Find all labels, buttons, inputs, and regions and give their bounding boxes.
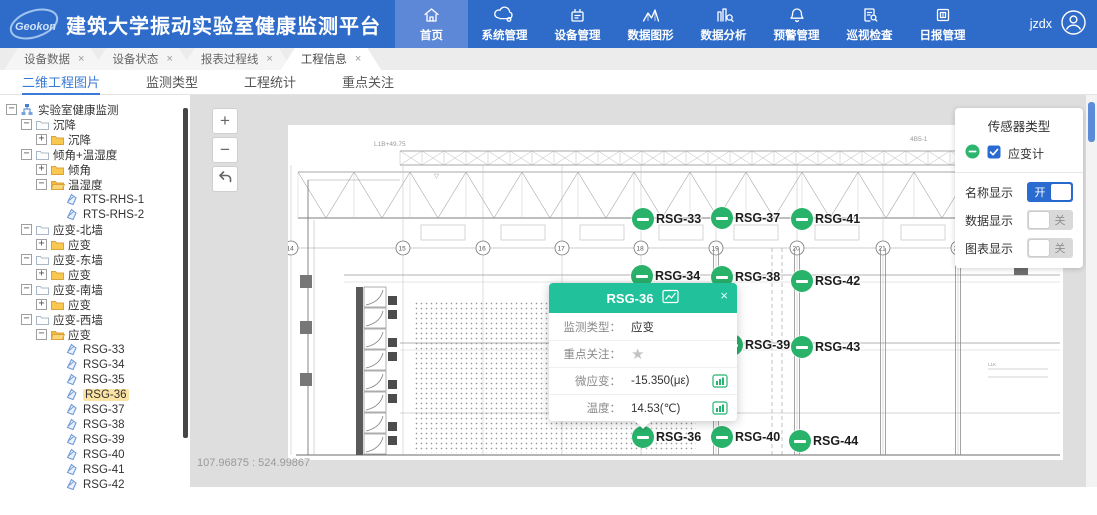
tree-item[interactable]: − 沉降 <box>0 117 190 132</box>
trend-chart-icon[interactable] <box>662 289 679 307</box>
sub-tabbar: 二维工程图片 监测类型 工程统计 重点关注 <box>0 70 1097 95</box>
sensor-type-row: 应变计 <box>965 144 1073 162</box>
nav-label: 首页 <box>420 27 443 43</box>
tree-item[interactable]: + 倾角 <box>0 162 190 177</box>
toggle-knob <box>1029 212 1049 228</box>
collapse-minus-icon[interactable] <box>965 144 980 162</box>
tree-expander[interactable]: − <box>21 284 32 295</box>
sensor-marker-label: RSG-36 <box>656 430 701 444</box>
tree-item[interactable]: + 沉降 <box>0 132 190 147</box>
tree-item[interactable]: RSG-41 <box>0 462 190 477</box>
tree-item-label: RSG-42 <box>83 479 125 491</box>
toggle-state-label: 关 <box>1049 212 1071 228</box>
display-toggle[interactable]: 关 <box>1027 210 1073 230</box>
tree-expander[interactable]: − <box>21 254 32 265</box>
popup-rows: 监测类型： 应变 重点关注： ★ 微应变： -15.350(με) 温度： 14… <box>549 313 737 421</box>
tree-item-icon <box>65 343 80 356</box>
toggle-state-label: 关 <box>1049 240 1071 256</box>
sensor-marker[interactable]: RSG-40 <box>711 426 780 448</box>
sensor-marker-label: RSG-33 <box>656 212 701 226</box>
tree-item-label: 应变-东墙 <box>53 252 103 268</box>
svg-text:21: 21 <box>879 246 887 253</box>
bar-chart-icon[interactable] <box>712 401 728 415</box>
username: jzdx <box>1030 17 1052 31</box>
tab-label: 报表过程线 <box>201 51 259 67</box>
popup-row: 微应变： -15.350(με) <box>549 367 737 394</box>
sub-tab-label: 工程统计 <box>244 72 296 91</box>
nav-item[interactable]: 预警管理 <box>760 0 833 48</box>
svg-text:4B5-1: 4B5-1 <box>910 136 928 143</box>
nav-icon <box>714 5 734 25</box>
undo-icon <box>217 169 233 189</box>
tree-item-icon <box>65 388 80 401</box>
svg-text:16: 16 <box>479 246 487 253</box>
svg-text:Geokon: Geokon <box>15 21 56 33</box>
sensor-marker[interactable]: RSG-33 <box>632 208 701 230</box>
nav-icon <box>422 5 441 25</box>
sensor-marker-icon <box>711 426 733 448</box>
sensor-marker[interactable]: RSG-43 <box>791 336 860 358</box>
sensor-marker-icon <box>791 336 813 358</box>
bar-chart-icon[interactable] <box>712 374 728 388</box>
nav-label: 数据分析 <box>701 27 747 43</box>
tree-item[interactable]: RSG-38 <box>0 417 190 432</box>
popup-pointer-arrow <box>635 421 651 429</box>
nav-icon <box>934 5 952 25</box>
sensor-marker[interactable]: RSG-41 <box>791 208 860 230</box>
cursor-coordinates: 107.96875 : 524.99867 <box>197 457 310 469</box>
tree-item[interactable]: − 实验室健康监测 <box>0 102 190 117</box>
tree-item[interactable]: + 应变 <box>0 267 190 282</box>
tab-close-icon[interactable]: × <box>166 53 172 65</box>
tree-item[interactable]: RSG-33 <box>0 342 190 357</box>
reset-view-button[interactable] <box>212 166 238 192</box>
sub-tab[interactable]: 工程统计 <box>244 70 296 95</box>
sensor-popup-header: RSG-36 × <box>549 283 737 313</box>
sensor-marker-label: RSG-44 <box>813 434 858 448</box>
svg-text:15: 15 <box>399 246 407 253</box>
page-title: 建筑大学振动实验室健康监测平台 <box>66 10 381 39</box>
tree-item-icon <box>65 478 80 491</box>
tree-expander[interactable]: − <box>36 329 47 340</box>
tree-item-icon <box>35 148 50 161</box>
tab-label: 工程信息 <box>301 51 347 67</box>
window-tab[interactable]: 工程信息 × <box>281 48 381 70</box>
sensor-marker-icon <box>789 430 811 452</box>
nav-icon <box>641 5 661 25</box>
nav-item[interactable]: 设备管理 <box>541 0 614 48</box>
tree-item[interactable]: RSG-37 <box>0 402 190 417</box>
panel-divider <box>955 172 1083 173</box>
tree-item-icon <box>35 223 50 236</box>
popup-row: 温度： 14.53(℃) <box>549 394 737 421</box>
sensor-marker-label: RSG-42 <box>815 274 860 288</box>
zoom-controls: + − <box>212 108 238 195</box>
nav-label: 巡视检查 <box>847 27 893 43</box>
tree-item-label: RSG-36 <box>83 389 129 401</box>
checkbox-checked-icon[interactable] <box>987 145 1001 162</box>
popup-row-label: 监测类型： <box>549 319 621 335</box>
tree-item[interactable]: RSG-35 <box>0 372 190 387</box>
window-tab[interactable]: 报表过程线 × <box>181 48 293 70</box>
toggle-row: 数据显示 关 <box>965 210 1073 230</box>
sensor-marker-label: RSG-41 <box>815 212 860 226</box>
sensor-type-label: 应变计 <box>1008 145 1044 162</box>
zoom-in-button[interactable]: + <box>212 108 238 134</box>
tree-expander[interactable]: + <box>36 239 47 250</box>
tree-expander[interactable]: + <box>36 134 47 145</box>
window-tab[interactable]: 设备状态 × <box>92 48 192 70</box>
tree-expander[interactable]: − <box>21 149 32 160</box>
sensor-marker-label: RSG-40 <box>735 430 780 444</box>
svg-text:▽: ▽ <box>434 173 439 180</box>
popup-row-label: 重点关注： <box>549 346 621 362</box>
sensor-marker-icon <box>791 270 813 292</box>
tab-label: 设备数据 <box>24 51 70 67</box>
tree-item-icon <box>65 448 80 461</box>
zoom-out-button[interactable]: − <box>212 137 238 163</box>
popup-row-label: 微应变： <box>549 373 621 389</box>
tree-item-label: RTS-RHS-2 <box>83 209 144 221</box>
tree-item-icon <box>50 133 65 146</box>
tree-item-label: 应变-南墙 <box>53 282 103 298</box>
toggle-label: 图表显示 <box>965 240 1013 257</box>
popup-row-value: ★ <box>631 347 644 362</box>
tree-item-label: 实验室健康监测 <box>38 102 119 118</box>
nav-item[interactable]: 数据分析 <box>687 0 760 48</box>
popup-row: 监测类型： 应变 <box>549 313 737 340</box>
sub-tab[interactable]: 重点关注 <box>342 70 394 95</box>
tree-item-label: RSG-41 <box>83 464 125 476</box>
tree-item[interactable]: + 应变 <box>0 237 190 252</box>
tree-item-icon <box>20 103 35 116</box>
tree-item-icon <box>50 328 65 341</box>
nav-item[interactable]: 数据图形 <box>614 0 687 48</box>
tree-item[interactable]: − 应变-东墙 <box>0 252 190 267</box>
sensor-popup: RSG-36 × 监测类型： 应变 重点关注： ★ 微应变： -15.350(μ… <box>549 283 737 421</box>
nav-icon <box>788 5 806 25</box>
sensor-marker[interactable]: RSG-36 <box>632 426 701 448</box>
tree-item-label: RSG-39 <box>83 434 125 446</box>
page-scrollbar-thumb[interactable] <box>1088 102 1095 142</box>
tree-item[interactable]: + 应变 <box>0 297 190 312</box>
svg-text:18: 18 <box>637 246 645 253</box>
tree-item-label: 温湿度 <box>68 177 103 193</box>
tree-item-label: 应变 <box>68 297 91 313</box>
page-scrollbar <box>1086 95 1097 487</box>
tree-item-label: RSG-34 <box>83 359 125 371</box>
sensor-marker-label: RSG-39 <box>745 338 790 352</box>
tree-item[interactable]: RSG-42 <box>0 477 190 492</box>
sensor-marker[interactable]: RSG-42 <box>791 270 860 292</box>
sensor-marker-label: RSG-37 <box>735 211 780 225</box>
sensor-type-panel: 传感器类型 应变计 名称显示 开 数据显示 关 <box>955 108 1083 268</box>
toggle-knob <box>1029 240 1049 256</box>
sensor-marker-icon <box>632 426 654 448</box>
tree-item-icon <box>50 268 65 281</box>
tree-expander[interactable]: − <box>21 314 32 325</box>
tree-item-icon <box>35 313 50 326</box>
nav-label: 日报管理 <box>920 27 966 43</box>
svg-text:20: 20 <box>793 246 801 253</box>
svg-text:17: 17 <box>558 246 566 253</box>
tree-item[interactable]: − 倾角+温湿度 <box>0 147 190 162</box>
tree-item-icon <box>50 238 65 251</box>
popup-row-value: -15.350(με) <box>631 375 689 387</box>
tab-label: 设备状态 <box>112 51 158 67</box>
tree-item[interactable]: RSG-34 <box>0 357 190 372</box>
tree-expander[interactable]: − <box>36 179 47 190</box>
tree-item-icon <box>65 463 80 476</box>
tree-item-icon <box>35 283 50 296</box>
tree-item-icon <box>50 163 65 176</box>
nav-icon <box>568 5 587 25</box>
nav-label: 预警管理 <box>774 27 820 43</box>
nav-icon <box>494 5 515 25</box>
tree-item-label: 应变 <box>68 237 91 253</box>
sensor-marker-icon <box>791 208 813 230</box>
drawing-canvas: + − 141516171819202122L1KL1B+49.754B5-1▽… <box>190 95 1086 487</box>
tree-item[interactable]: RSG-36 <box>0 387 190 402</box>
sub-tab-label: 二维工程图片 <box>22 72 100 91</box>
svg-text:L1B+49.75: L1B+49.75 <box>374 141 406 148</box>
tree-item-icon <box>65 373 80 386</box>
tree-item-icon <box>65 418 80 431</box>
nav-item[interactable]: 首页 <box>395 0 468 48</box>
geokon-logo-icon: Geokon <box>6 4 62 44</box>
sensor-marker-icon <box>632 208 654 230</box>
sub-tab-label: 监测类型 <box>146 72 198 91</box>
sub-tab[interactable]: 二维工程图片 <box>22 70 100 95</box>
tree-expander[interactable]: + <box>36 269 47 280</box>
tree-item-icon <box>50 178 65 191</box>
tree-item-label: 应变-北墙 <box>53 222 103 238</box>
nav-label: 数据图形 <box>628 27 674 43</box>
tree-item[interactable]: − 温湿度 <box>0 177 190 192</box>
tab-close-icon[interactable]: × <box>266 53 272 65</box>
toggle-row: 图表显示 关 <box>965 238 1073 258</box>
toggle-label: 名称显示 <box>965 184 1013 201</box>
tree-item-label: 应变 <box>68 267 91 283</box>
tab-close-icon[interactable]: × <box>355 53 361 65</box>
popup-row-value: 应变 <box>631 319 654 335</box>
tree-expander[interactable]: − <box>6 104 17 115</box>
app-window: Geokon 建筑大学振动实验室健康监测平台 首页 系统管理 设备管理 数据图形… <box>0 0 1097 515</box>
sensor-marker-label: RSG-34 <box>655 269 700 283</box>
panel-title: 传感器类型 <box>965 116 1073 135</box>
tab-close-icon[interactable]: × <box>78 53 84 65</box>
window-tabbar: 设备数据 × 设备状态 × 报表过程线 × 工程信息 × <box>0 48 1097 70</box>
tree-item[interactable]: − 应变 <box>0 327 190 342</box>
toggle-row: 名称显示 开 <box>965 182 1073 202</box>
display-toggles: 名称显示 开 数据显示 关 图表显示 关 <box>965 182 1073 258</box>
svg-text:L1K: L1K <box>988 362 996 367</box>
tree-item-label: 应变 <box>68 327 91 343</box>
close-icon[interactable]: × <box>720 288 728 303</box>
nav-item[interactable]: 系统管理 <box>468 0 541 48</box>
tree-item-icon <box>65 358 80 371</box>
nav-label: 系统管理 <box>482 27 528 43</box>
svg-text:19: 19 <box>712 246 720 253</box>
svg-text:14: 14 <box>288 246 294 253</box>
sensor-marker[interactable]: RSG-37 <box>711 207 780 229</box>
tree-item-label: RSG-38 <box>83 419 125 431</box>
sub-tab[interactable]: 监测类型 <box>146 70 198 95</box>
tree-item-icon <box>50 298 65 311</box>
tree-item-icon <box>65 433 80 446</box>
tree-item-label: RSG-37 <box>83 404 125 416</box>
tree-item-label: RSG-33 <box>83 344 125 356</box>
display-toggle[interactable]: 关 <box>1027 238 1073 258</box>
nav-item[interactable]: 日报管理 <box>906 0 979 48</box>
tree-item-label: 倾角 <box>68 162 91 178</box>
toggle-state-label: 开 <box>1029 184 1051 200</box>
tree-item[interactable]: RTS-RHS-2 <box>0 207 190 222</box>
popup-row-value: 14.53(℃) <box>631 401 680 415</box>
tree-item[interactable]: − 应变-北墙 <box>0 222 190 237</box>
tree-item-icon <box>65 193 80 206</box>
tree-item-label: 应变-西墙 <box>53 312 103 328</box>
tree-item-label: RSG-40 <box>83 449 125 461</box>
avatar-icon <box>1060 9 1087 39</box>
popup-row-label: 温度： <box>549 400 621 416</box>
tree-item[interactable]: RSG-39 <box>0 432 190 447</box>
popup-row: 重点关注： ★ <box>549 340 737 367</box>
tree-item-icon <box>35 118 50 131</box>
tree-item-icon <box>35 253 50 266</box>
display-toggle[interactable]: 开 <box>1027 182 1073 202</box>
popup-title: RSG-36 <box>607 291 654 306</box>
tree-item[interactable]: − 应变-南墙 <box>0 282 190 297</box>
tree-expander[interactable]: − <box>21 119 32 130</box>
tree-item-icon <box>65 208 80 221</box>
nav-item[interactable]: 巡视检查 <box>833 0 906 48</box>
tree-item-label: RTS-RHS-1 <box>83 194 144 206</box>
tree-item[interactable]: RTS-RHS-1 <box>0 192 190 207</box>
tree-item-label: 倾角+温湿度 <box>53 147 117 163</box>
tree-item[interactable]: RSG-40 <box>0 447 190 462</box>
sub-tab-label: 重点关注 <box>342 72 394 91</box>
tree-scrollbar[interactable] <box>183 108 188 438</box>
tree-item-icon <box>65 403 80 416</box>
tree-expander[interactable]: + <box>36 164 47 175</box>
tree-expander[interactable]: − <box>21 224 32 235</box>
sensor-marker[interactable]: RSG-44 <box>789 430 858 452</box>
tree-item-label: RSG-35 <box>83 374 125 386</box>
tree-item-label: 沉降 <box>68 132 91 148</box>
toggle-knob <box>1051 184 1071 200</box>
sensor-marker-icon <box>711 207 733 229</box>
window-tab[interactable]: 设备数据 × <box>4 48 104 70</box>
nav-icon <box>860 5 879 25</box>
tree-item-label: 沉降 <box>53 117 76 133</box>
tree-item[interactable]: − 应变-西墙 <box>0 312 190 327</box>
sensor-marker-label: RSG-43 <box>815 340 860 354</box>
nav-label: 设备管理 <box>555 27 601 43</box>
tree-expander[interactable]: + <box>36 299 47 310</box>
sensor-marker-label: RSG-38 <box>735 270 780 284</box>
toggle-label: 数据显示 <box>965 212 1013 229</box>
sensor-tree: − 实验室健康监测 − 沉降 + 沉降 − 倾角+温湿度 + 倾角 − 温湿度 … <box>0 95 190 495</box>
main-nav: 首页 系统管理 设备管理 数据图形 数据分析 预警管理 巡视检查 <box>395 0 979 48</box>
user-menu[interactable]: jzdx <box>1030 0 1087 48</box>
app-header: Geokon 建筑大学振动实验室健康监测平台 首页 系统管理 设备管理 数据图形… <box>0 0 1097 48</box>
